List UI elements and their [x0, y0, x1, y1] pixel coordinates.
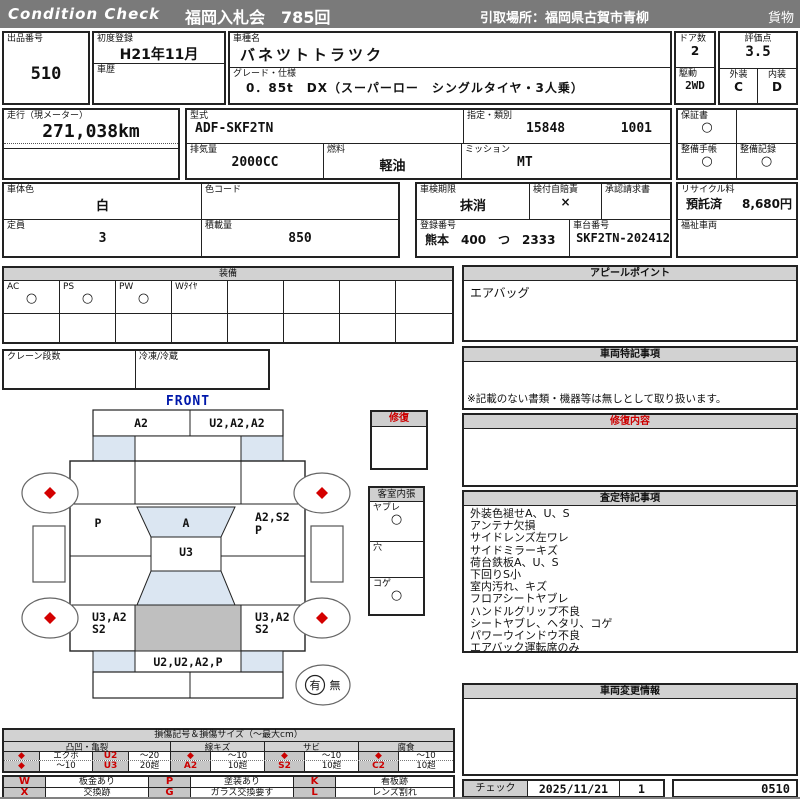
- repair-detail-title: 修復内容: [464, 415, 796, 429]
- change-info-title: 車両変更情報: [464, 685, 796, 699]
- interior-grade: D: [758, 80, 796, 94]
- cabin-item-mark: ○: [370, 513, 423, 526]
- equipment-mark: ○: [60, 292, 115, 305]
- front-bumper-left-damage: A2: [134, 416, 148, 430]
- mileage-value: 271,038km: [4, 121, 178, 143]
- front-pillar-right: [241, 436, 283, 461]
- transmission-value: MT: [462, 155, 670, 170]
- vehicle-notes-title: 車両特記事項: [464, 348, 796, 362]
- first-registration-value: H21年11月: [94, 44, 224, 64]
- assessment-line: サイドレンズ左ワレ: [470, 532, 790, 544]
- lot-number-value: 510: [4, 44, 88, 103]
- repair-mark-title: 修復: [372, 412, 426, 427]
- mileage-box: 走行（現メーター） 271,038km: [2, 108, 180, 180]
- vehicle-notes-panel: 車両特記事項 ※記載のない書類・機器等は無しとして取り扱います。: [462, 346, 798, 410]
- equipment-cell-empty: [284, 314, 340, 342]
- equipment-cell-empty: [228, 281, 284, 313]
- drive-label: 駆動: [676, 68, 714, 79]
- legend-mark: P: [149, 777, 191, 787]
- legend-desc: 10超: [399, 761, 453, 771]
- equipment-mark: ○: [116, 292, 171, 305]
- assessment-line: ハンドルグリップ不良: [470, 606, 790, 618]
- warranty-mark: ○: [678, 121, 736, 134]
- approval-label: 承認請求書: [602, 184, 670, 195]
- cabin-lining-box: 客室内張 ヤブレ ○ 穴 コゲ ○: [368, 486, 425, 616]
- cabin-item-label: 穴: [370, 542, 423, 553]
- recycle-status: 預託済: [686, 195, 722, 212]
- legend-mark-desc: 看板跡: [336, 777, 453, 787]
- recycle-label: リサイクル料: [678, 184, 796, 195]
- interior-label: 内装: [758, 69, 796, 80]
- legend-desc: ～10: [211, 752, 265, 760]
- grade-value: 0．85t DX（スーパーロー シングルタイヤ・3人乗）: [230, 79, 670, 96]
- class-number: 1001: [621, 121, 652, 136]
- reefer-label: 冷凍/冷蔵: [136, 351, 268, 362]
- repair-detail-panel: 修復内容: [462, 413, 798, 487]
- repair-mark-legend: W 板金あり P 塗装あり K 看板跡 X 交換跡 G ガラス交換要す L レン…: [2, 775, 455, 799]
- presence-no: 無: [330, 678, 341, 692]
- legend-desc: 10超: [211, 761, 265, 771]
- equipment-cell-empty: [4, 314, 60, 342]
- check-row: チェック 2025/11/21 1 0510: [462, 779, 798, 798]
- crane-reefer-box: クレーン段数 冷凍/冷蔵: [2, 349, 270, 390]
- assessment-title: 査定特記事項: [464, 492, 796, 506]
- insurance-mark: ×: [530, 195, 601, 209]
- equipment-cell-ps: PS ○: [60, 281, 116, 313]
- legend-group: 凸凹・亀裂: [4, 742, 171, 751]
- equipment-label: Wﾀｲﾔ: [172, 281, 227, 292]
- insurance-label: 検付自賠責: [530, 184, 601, 195]
- history-label: 車歴: [94, 64, 224, 75]
- grade-label: グレード・仕様: [230, 68, 670, 79]
- vehicle-notes-disclaimer: ※記載のない書類・機器等は無しとして取り扱います。: [464, 389, 796, 408]
- legend-group: サビ: [265, 742, 359, 751]
- condition-check-sheet: Condition Check 福岡入札会 785回 引取場所：福岡県古賀市青柳…: [0, 0, 800, 800]
- maintenance-book-mark: ○: [678, 155, 736, 168]
- rear-glass-zone: [137, 571, 235, 605]
- right-panel-damage-1: A2,S2: [255, 510, 290, 524]
- check-count: 1: [620, 781, 663, 796]
- model-name-value: バネツトトラツク: [230, 44, 670, 65]
- equipment-cell-empty: [340, 314, 396, 342]
- equipment-cell-ac: AC ○: [4, 281, 60, 313]
- model-box: 車種名 バネツトトラツク グレード・仕様 0．85t DX（スーパーロー シング…: [228, 31, 672, 105]
- check-code: 0510: [761, 782, 796, 796]
- left-panel-damage: P: [95, 516, 102, 530]
- body-color-value: 白: [4, 195, 201, 214]
- title-bar: Condition Check 福岡入札会 785回 引取場所：福岡県古賀市青柳…: [0, 0, 800, 28]
- crane-label: クレーン段数: [4, 351, 135, 362]
- legend-symbol: U2: [93, 752, 129, 760]
- assessment-line: サイドミラーキズ: [470, 545, 790, 557]
- assessment-panel: 査定特記事項 外装色褪せA、U、S アンテナ欠損 サイドレンズ左ワレ サイドミラ…: [462, 490, 798, 653]
- load-value: 850: [202, 231, 398, 246]
- equipment-table: 装備 AC ○ PS ○ PW ○ Wﾀｲﾔ: [2, 266, 454, 344]
- equipment-cell-empty: [60, 314, 116, 342]
- lot-number-label: 出品番号: [4, 33, 88, 44]
- equipment-cell-empty: [396, 314, 452, 342]
- legend-symbol: U3: [93, 761, 129, 771]
- legend-desc: ～20: [129, 752, 171, 760]
- maintenance-record-mark: ○: [737, 155, 796, 168]
- color-code-label: 色コード: [202, 184, 398, 195]
- legend-symbol: ◆: [265, 752, 305, 760]
- welfare-label: 福祉車両: [678, 220, 796, 231]
- front-label: FRONT: [166, 394, 210, 409]
- equipment-cell-empty: [116, 314, 172, 342]
- legend-mark: W: [4, 777, 46, 787]
- cabin-lining-title: 客室内張: [370, 488, 423, 502]
- recycle-fee: 8,680円: [742, 195, 792, 212]
- equipment-cell-empty: [284, 281, 340, 313]
- legend-symbol: ◆: [171, 752, 211, 760]
- equipment-cell-empty: [396, 281, 452, 313]
- front-pillar-left: [93, 436, 135, 461]
- legend-symbol: A2: [171, 761, 211, 771]
- legend-symbol: ◆: [4, 761, 40, 771]
- mirror-right: [311, 526, 343, 582]
- exterior-label: 外装: [720, 69, 757, 80]
- color-capacity-box: 車体色 白 色コード 定員 3 積載量 850: [2, 182, 400, 258]
- right-panel-damage-2: P: [255, 523, 262, 537]
- legend-symbol: ◆: [4, 752, 40, 760]
- exterior-grade: C: [720, 80, 757, 94]
- equipment-cell-pw: PW ○: [116, 281, 172, 313]
- appeal-panel: アピールポイント エアバッグ: [462, 265, 798, 342]
- legend-desc: ～10: [40, 761, 93, 771]
- vehicle-category: 貨物: [768, 7, 794, 26]
- registration-box: 初度登録 H21年11月 車歴: [92, 31, 226, 105]
- transmission-label: ミッション: [462, 144, 670, 155]
- equipment-cell-empty: [172, 314, 228, 342]
- model-code-label: 型式: [187, 110, 463, 121]
- doors-value: 2: [676, 44, 714, 58]
- legend-symbol: ◆: [359, 752, 399, 760]
- equipment-mark: ○: [4, 292, 59, 305]
- rear-right-damage-2: S2: [255, 622, 269, 636]
- legend-desc: ～10: [305, 752, 359, 760]
- plate-label: 登録番号: [417, 220, 569, 231]
- legend-mark-desc: 板金あり: [46, 777, 149, 787]
- displacement-value: 2000CC: [187, 155, 323, 170]
- mileage-label: 走行（現メーター）: [4, 110, 178, 121]
- vehicle-damage-diagram: FRONT A2 U2,A2,A2 U2,U2,A2,P: [8, 393, 368, 745]
- capacity-label: 定員: [4, 220, 201, 231]
- lot-number-box: 出品番号 510: [2, 31, 90, 105]
- inspection-label: 車検期限: [417, 184, 529, 195]
- rear-pillar-left: [93, 651, 135, 672]
- check-date: 2025/11/21: [528, 781, 620, 796]
- fuel-value: 軽油: [324, 155, 461, 174]
- assessment-line: フロアシートヤブレ: [470, 593, 790, 605]
- legend-mark-desc: 塗装あり: [191, 777, 294, 787]
- recycle-box: リサイクル料 預託済 8,680円 福祉車両: [676, 182, 798, 258]
- inspection-value: 抹消: [417, 195, 529, 214]
- equipment-title: 装備: [4, 268, 452, 281]
- equipment-cell-wtire: Wﾀｲﾔ: [172, 281, 228, 313]
- legend-symbol: C2: [359, 761, 399, 771]
- damage-legend: 損傷記号＆損傷サイズ（～最大cm） 凸凹・亀裂 線キズ サビ 腐食 ◆ エクボ …: [2, 728, 455, 773]
- rear-bumper-damage: U2,U2,A2,P: [153, 655, 222, 669]
- check-label: チェック: [464, 781, 528, 796]
- change-info-panel: 車両変更情報: [462, 683, 798, 776]
- fuel-label: 燃料: [324, 144, 461, 155]
- legend-desc: 20超: [129, 761, 171, 771]
- appeal-content: エアバッグ: [464, 281, 796, 304]
- cabin-item-mark: ○: [370, 589, 423, 602]
- model-name-label: 車種名: [230, 33, 670, 44]
- presence-yes: 有: [310, 678, 321, 692]
- doors-drive-box: ドア数 2 駆動 2WD: [674, 31, 716, 105]
- model-code-value: ADF-SKF2TN: [187, 121, 463, 136]
- appeal-title: アピールポイント: [464, 267, 796, 281]
- equipment-cell-empty: [340, 281, 396, 313]
- rear-pillar-right: [241, 651, 283, 672]
- rear-bumper: [93, 672, 283, 698]
- pickup-location: 引取場所：福岡県古賀市青柳: [480, 7, 649, 26]
- roof-damage: U3: [179, 545, 193, 559]
- chassis-value: SKF2TN-202412: [570, 231, 670, 245]
- inspection-box: 車検期限 抹消 検付自賠責 × 承認請求書 登録番号 熊本 400 つ 2333…: [415, 182, 672, 258]
- documents-box: 保証書 ○ 整備手帳 ○ 整備記録 ○: [676, 108, 798, 180]
- spec-box: 型式 ADF-SKF2TN 指定・類別 15848 1001 排気量 2000C…: [185, 108, 672, 180]
- first-registration-label: 初度登録: [94, 33, 224, 44]
- bottom-rule: [0, 797, 800, 799]
- windshield-damage: A: [183, 516, 190, 530]
- score-value: 3.5: [720, 44, 796, 60]
- presence-indicator: [296, 665, 350, 705]
- truck-bed-zone: [135, 605, 241, 651]
- score-box: 評価点 3.5 外装 C 内装 D: [718, 31, 798, 105]
- type-number: 15848: [526, 121, 565, 136]
- equipment-cell-empty: [228, 314, 284, 342]
- legend-symbol: S2: [265, 761, 305, 771]
- type-class-label: 指定・類別: [464, 110, 670, 121]
- auction-title: 福岡入札会 785回: [185, 4, 330, 28]
- capacity-value: 3: [4, 231, 201, 246]
- legend-desc: 10超: [305, 761, 359, 771]
- legend-group: 腐食: [359, 742, 453, 751]
- legend-desc: エクボ: [40, 752, 93, 760]
- load-label: 積載量: [202, 220, 398, 231]
- repair-mark-box: 修復: [370, 410, 428, 470]
- doors-label: ドア数: [676, 33, 714, 44]
- score-label: 評価点: [720, 33, 796, 44]
- assessment-line: エアバック運転席のみ: [470, 642, 790, 654]
- brand-logo: Condition Check: [8, 5, 160, 23]
- legend-mark: K: [294, 777, 336, 787]
- legend-group: 線キズ: [171, 742, 265, 751]
- legend-desc: ～10: [399, 752, 453, 760]
- body-color-label: 車体色: [4, 184, 201, 195]
- drive-value: 2WD: [676, 79, 714, 92]
- chassis-label: 車台番号: [570, 220, 670, 231]
- front-bumper-right-damage: U2,A2,A2: [209, 416, 264, 430]
- mirror-left: [33, 526, 65, 582]
- rear-left-damage-2: S2: [92, 622, 106, 636]
- displacement-label: 排気量: [187, 144, 323, 155]
- plate-value: 熊本 400 つ 2333: [417, 231, 569, 248]
